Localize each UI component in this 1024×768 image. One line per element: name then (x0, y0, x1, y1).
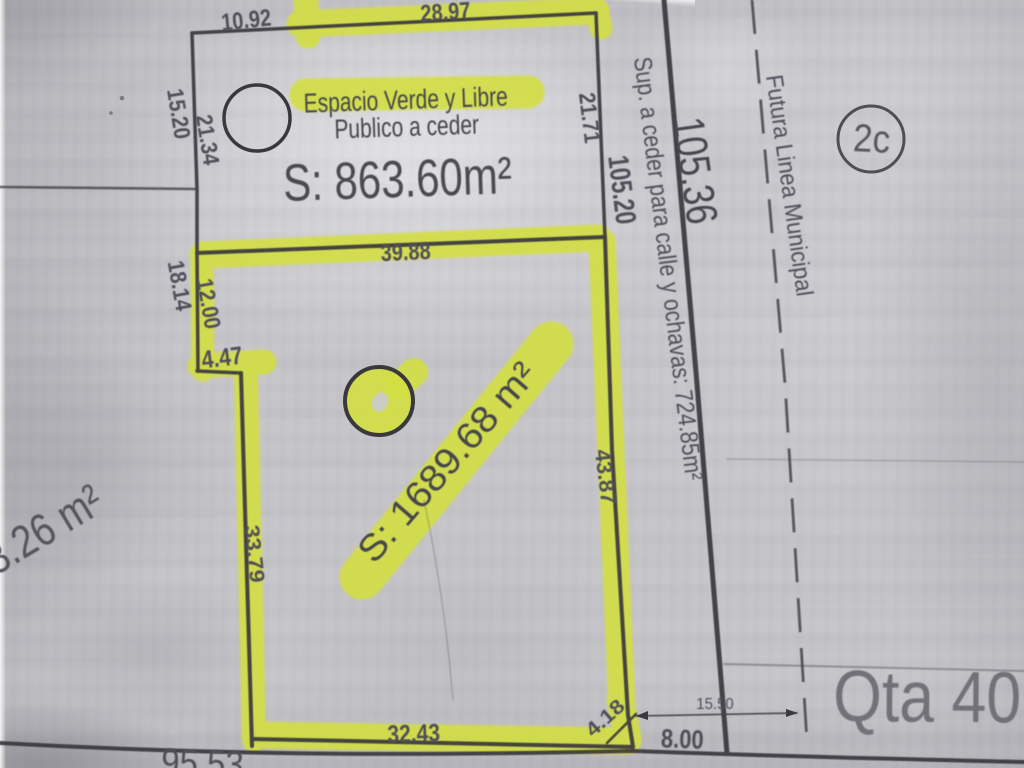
svg-text:Futura Linea Municipal: Futura Linea Municipal (761, 73, 819, 298)
svg-text:10.92: 10.92 (220, 4, 273, 36)
svg-text:15.50: 15.50 (696, 696, 733, 713)
svg-text:8.00: 8.00 (660, 724, 704, 755)
svg-text:S: 1689.68 m²: S: 1689.68 m² (349, 354, 545, 571)
svg-text:3.26 m²: 3.26 m² (0, 474, 111, 584)
svg-text:15.20: 15.20 (162, 87, 196, 141)
svg-text:S: 863.60m²: S: 863.60m² (282, 147, 513, 213)
svg-text:18.14: 18.14 (162, 258, 197, 312)
svg-text:12.00: 12.00 (191, 276, 226, 330)
svg-text:2c: 2c (852, 115, 891, 161)
svg-text:4.18: 4.18 (580, 694, 629, 741)
svg-text:33.79: 33.79 (240, 524, 270, 584)
svg-text:105.36: 105.36 (663, 114, 726, 227)
svg-text:Publico a ceder: Publico a ceder (334, 110, 480, 145)
svg-text:28.97: 28.97 (420, 0, 472, 27)
svg-text:Sup. a ceder para calle y ocha: Sup. a ceder para calle y ochavas: 724.8… (629, 55, 709, 482)
svg-text:4.47: 4.47 (200, 341, 244, 374)
svg-text:39.88: 39.88 (380, 237, 431, 266)
svg-text:Espacio Verde y Libre: Espacio Verde y Libre (303, 82, 508, 119)
svg-text:21.71: 21.71 (574, 91, 607, 144)
svg-text:95.53: 95.53 (160, 740, 244, 768)
svg-text:Qta 40: Qta 40 (833, 657, 1022, 739)
svg-text:21.34: 21.34 (191, 113, 225, 167)
svg-text:105.20: 105.20 (602, 153, 644, 226)
svg-text:32.43: 32.43 (387, 718, 441, 748)
svg-text:43.87: 43.87 (590, 448, 622, 506)
